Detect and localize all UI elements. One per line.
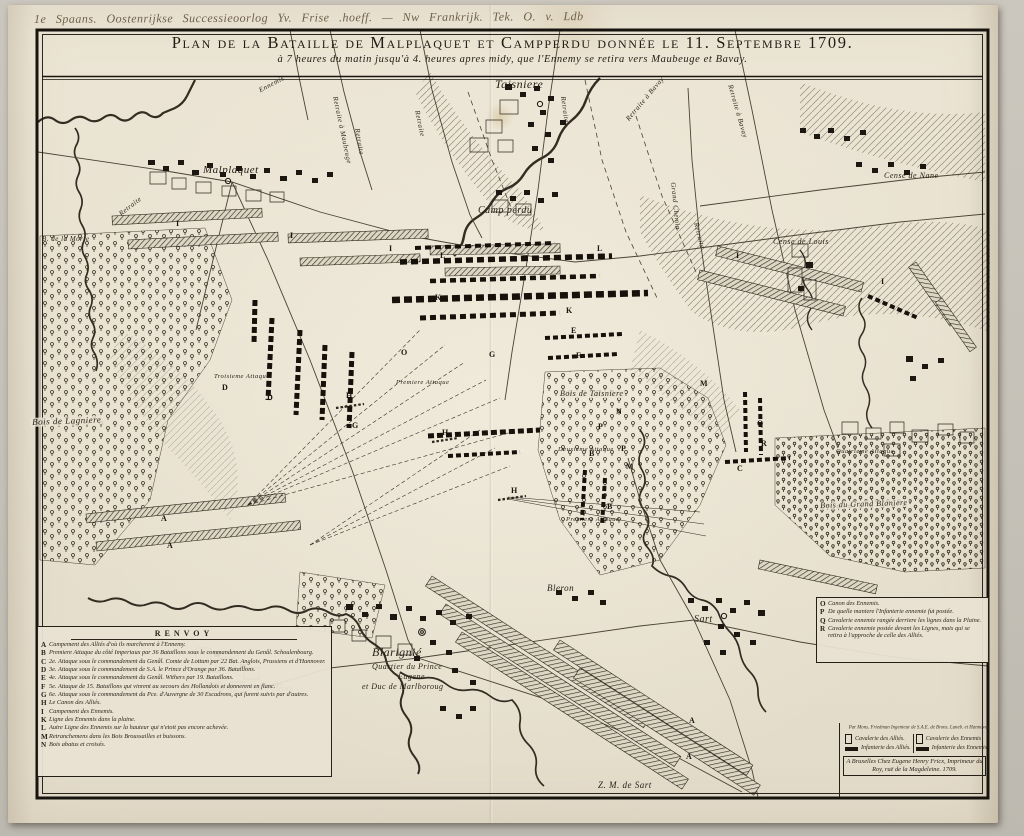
svg-text:I: I: [389, 244, 392, 253]
symbols-legend: Cavalerie des Alliés. Infanterie des All…: [843, 734, 986, 753]
legend-item: MRetranchemens dans les Bois Broussaille…: [41, 733, 327, 741]
map-label: Blarignié: [372, 646, 422, 658]
map-label: Cense de Louis: [773, 238, 829, 246]
infantry-symbol: [916, 747, 929, 751]
svg-text:B: B: [607, 502, 613, 511]
map-label: et Duc de Marlboroug: [362, 683, 443, 691]
renvoy-legend: RENVOY ACampement des Alliés d'où ils ma…: [37, 626, 332, 777]
map-label: Bleron: [547, 584, 574, 593]
map-label: Premiere Attaque: [566, 517, 619, 524]
svg-text:L: L: [597, 244, 602, 253]
svg-text:F: F: [576, 351, 581, 360]
legend-item: RCavalerie ennemie postée devant les Lig…: [820, 625, 985, 640]
svg-text:C: C: [737, 464, 743, 473]
map-label: Z. M. de Sart: [598, 781, 652, 790]
map-label: Quartier du Prince: [372, 663, 442, 671]
svg-text:P: P: [598, 422, 603, 431]
svg-text:H: H: [442, 428, 449, 437]
renvoy-title: RENVOY: [71, 629, 297, 640]
svg-text:A: A: [689, 716, 695, 725]
svg-text:H: H: [511, 486, 518, 495]
legend-item: ICampement des Ennemis.: [41, 708, 327, 716]
map-label: Taisniere: [495, 78, 543, 90]
legend-item: LAutre Ligne des Ennemis sur la hauteur …: [41, 724, 327, 732]
map-label: Eugene: [398, 673, 425, 681]
svg-text:P: P: [621, 444, 626, 453]
svg-text:H: H: [346, 391, 353, 400]
svg-text:G: G: [352, 421, 358, 430]
svg-text:I: I: [290, 231, 293, 240]
legend-item: QCavalerie ennemie rangée derriere les l…: [820, 617, 985, 625]
enemy-infantry-entry: Infanterie des Ennemis: [916, 744, 987, 753]
legend-item: ACampement des Alliés d'où ils marcheren…: [41, 641, 327, 649]
legend-item: OCanon des Ennemis.: [820, 600, 985, 608]
svg-text:N: N: [616, 407, 622, 416]
map-label: Premiere Attaque: [396, 380, 449, 387]
svg-text:K: K: [435, 293, 442, 302]
map-label: Sart: [694, 615, 713, 625]
map-title: Plan de la Bataille de Malplaquet et Cam…: [42, 33, 983, 53]
map-label: Cense de Nane: [884, 172, 939, 180]
map-label: Bois de Taisniere: [558, 390, 625, 398]
cartouche: Par Mons. Friedman Ingenieur de S.A.E. d…: [839, 723, 988, 797]
legend-item: PDe quelle maniere l'Infanterie ennemie …: [820, 608, 985, 616]
legend-item: D3e. Attaque sous le commandement de S.A…: [41, 666, 327, 674]
svg-text:G: G: [489, 350, 495, 359]
legend-item: C2e. Attaque sous le commandement du Gen…: [41, 658, 327, 666]
svg-text:R: R: [761, 439, 767, 448]
enemy-legend: OCanon des Ennemis. PDe quelle maniere l…: [816, 597, 989, 663]
svg-text:I: I: [736, 251, 739, 260]
map-label: Malplaquet: [203, 165, 259, 176]
svg-text:D: D: [267, 393, 273, 402]
svg-text:D: D: [222, 383, 228, 392]
allies-infantry-entry: Infanterie des Alliés.: [845, 744, 911, 753]
legend-item: HLe Canon des Alliés.: [41, 699, 327, 707]
svg-text:E: E: [571, 326, 576, 335]
engineer-credit: Par Mons. Friedman Ingenieur de S.A.E. d…: [849, 725, 981, 731]
cavalry-symbol: [845, 734, 852, 744]
allies-cavalry-entry: Cavalerie des Alliés.: [845, 734, 911, 744]
title-block: Plan de la Bataille de Malplaquet et Cam…: [42, 33, 983, 65]
legend-item: NBois abatus et croisés.: [41, 741, 327, 749]
cavalry-symbol: [916, 734, 923, 744]
svg-text:A: A: [167, 541, 173, 550]
svg-text:I: I: [176, 219, 179, 228]
map-label: B. de la Morte: [42, 236, 89, 243]
svg-text:A: A: [686, 752, 692, 761]
legend-item: E4e. Attaque sous le commandement du Gen…: [41, 674, 327, 682]
map-label: Quatrieme Attaque: [836, 449, 894, 456]
legend-item: F5e. Attaque de 15. Bataillons qui vinre…: [41, 683, 327, 691]
svg-text:I: I: [881, 277, 884, 286]
map-label: Troisieme Attaque: [214, 374, 270, 381]
enemy-cavalry-entry: Cavalerie des Ennemis: [916, 734, 987, 744]
map-label: Camp perdu: [478, 206, 532, 216]
engraved-battle-map: { "annotation": { "handwritten": "1e Spa…: [0, 0, 1024, 836]
legend-item: KLigne des Ennemis dans la plaine.: [41, 716, 327, 724]
svg-text:L: L: [440, 251, 445, 260]
map-label: Deuxieme Attaque: [558, 447, 614, 454]
infantry-symbol: [845, 747, 858, 751]
svg-text:O: O: [401, 348, 407, 357]
imprint: A Bruxelles Chez Eugene Henry Fricx, Imp…: [843, 756, 986, 776]
svg-text:M: M: [700, 379, 708, 388]
svg-text:K: K: [566, 306, 573, 315]
svg-text:A: A: [161, 514, 167, 523]
legend-item: G6e. Attaque sous le commandement du Pce…: [41, 691, 327, 699]
legend-item: BPremiere Attaque du côté Imperiaux par …: [41, 649, 327, 657]
svg-text:Q: Q: [757, 419, 763, 428]
svg-text:M: M: [626, 462, 634, 471]
map-subtitle: à 7 heures du matin jusqu'à 4. heures ap…: [42, 54, 983, 65]
